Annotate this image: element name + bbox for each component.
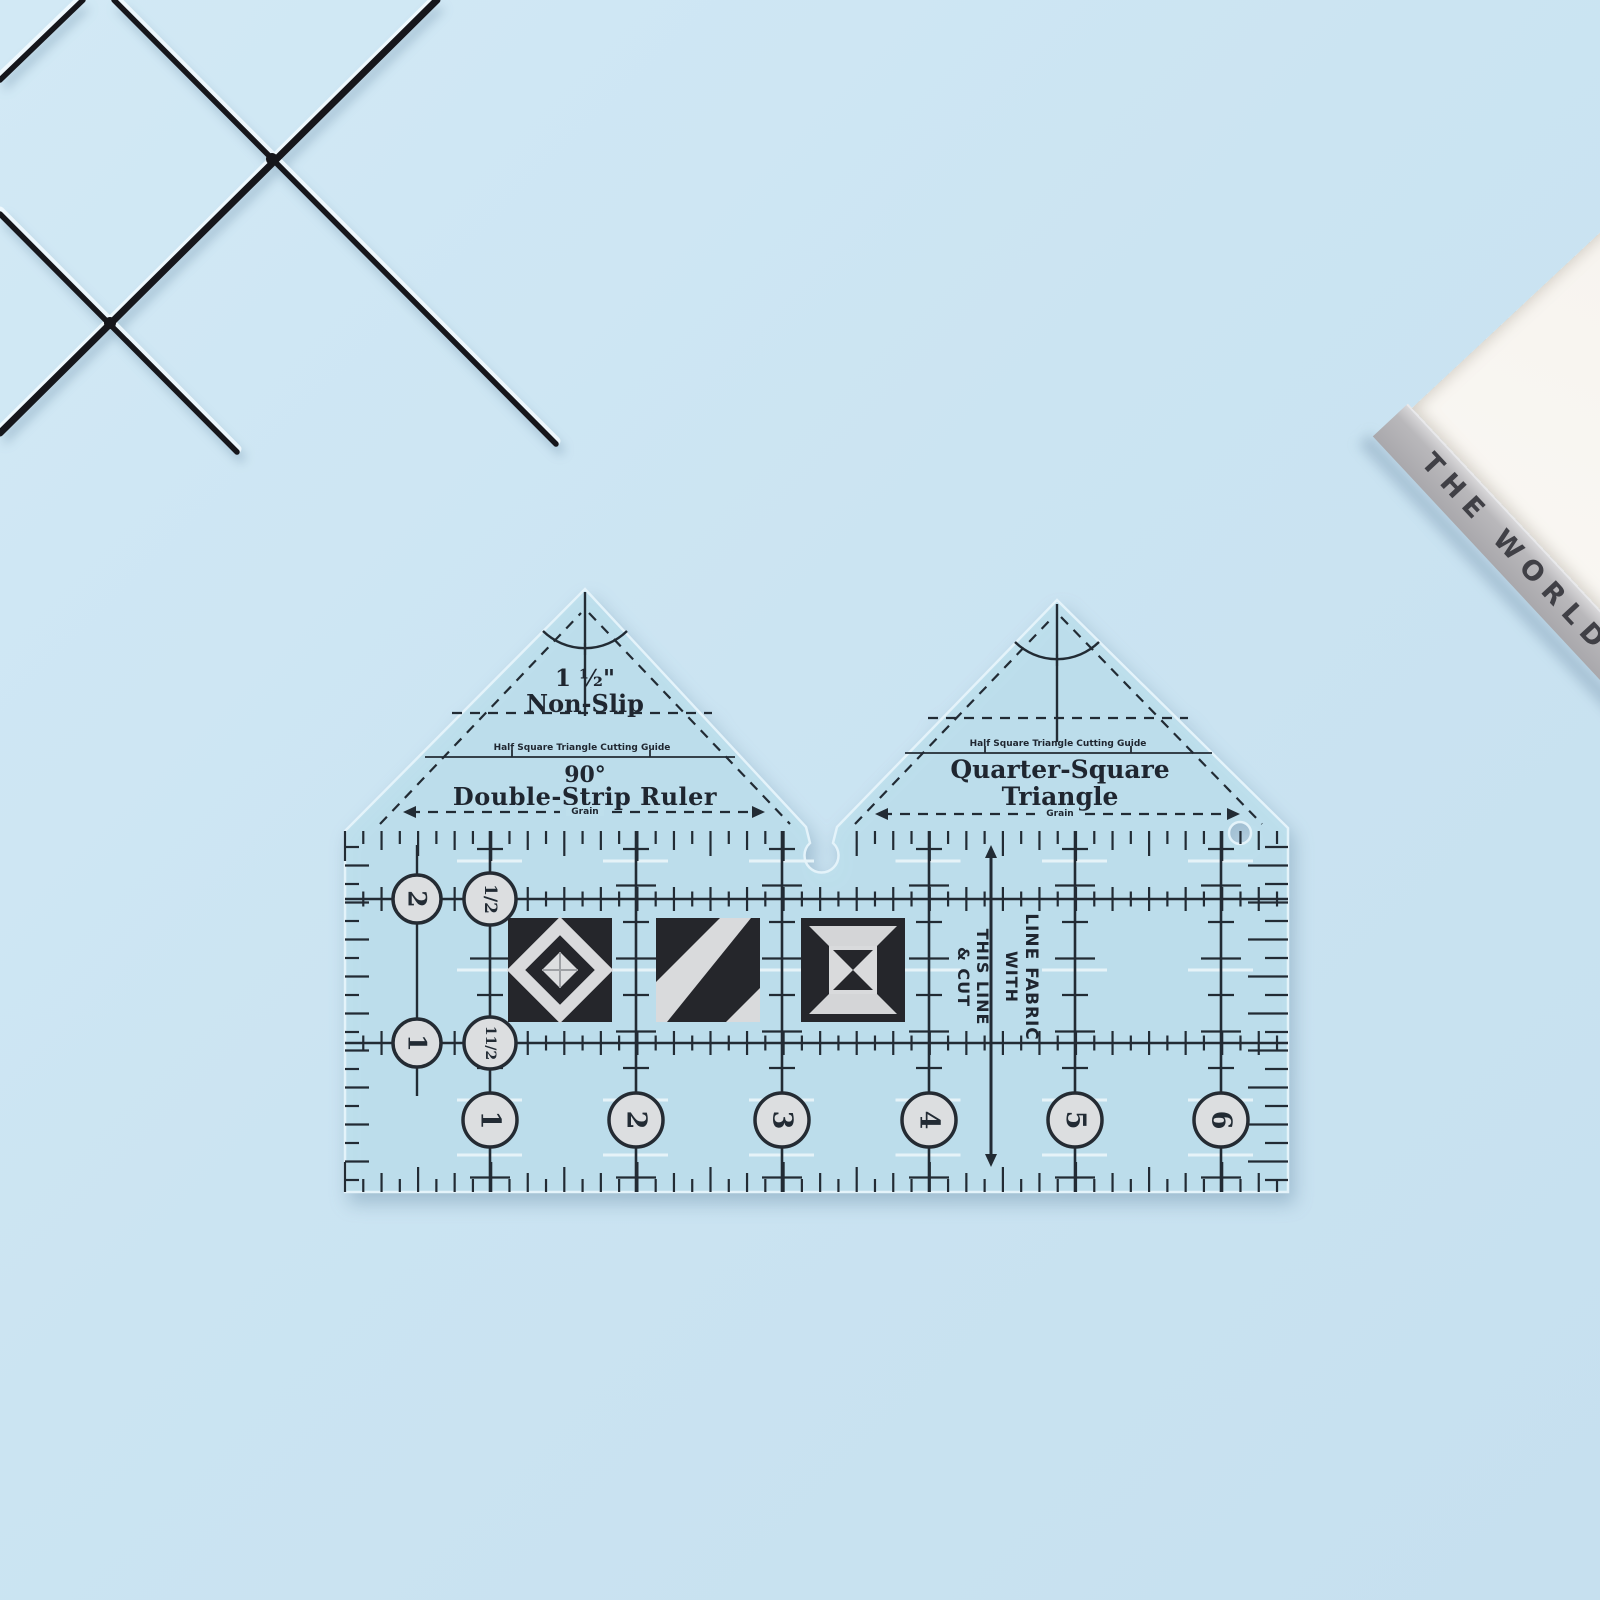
grain-label: Grain bbox=[1046, 809, 1073, 819]
scene-background: THE WORLD bbox=[0, 0, 1600, 1600]
cutting-guide-label: Half Square Triangle Cutting Guide bbox=[970, 739, 1147, 749]
nonslip-label: Non-Slip bbox=[526, 689, 644, 718]
inch-value: 3 bbox=[767, 1111, 798, 1130]
circle-value: 11/2 bbox=[482, 1026, 498, 1060]
ruler-title-line1: Quarter-Square bbox=[950, 755, 1169, 784]
inch-value: 4 bbox=[914, 1111, 945, 1130]
grain-label: Grain bbox=[571, 807, 598, 817]
inch-value: 6 bbox=[1206, 1111, 1237, 1130]
inch-value: 2 bbox=[621, 1111, 652, 1130]
circle-value: 1/2 bbox=[480, 884, 500, 914]
cut-instruction-line: LINE FABRIC bbox=[1021, 913, 1041, 1041]
inch-value: 5 bbox=[1060, 1111, 1091, 1130]
quilt-block-square-in-square bbox=[801, 918, 905, 1022]
quilt-block-diagonal-stripe bbox=[656, 918, 760, 1022]
circle-value: 2 bbox=[403, 890, 432, 907]
size-label: 1 ½" bbox=[555, 665, 615, 692]
quilt-block-diamond-in-square bbox=[508, 918, 612, 1022]
inch-value: 1 bbox=[475, 1111, 506, 1130]
cut-instruction-line: WITH bbox=[1002, 951, 1021, 1003]
quilting-ruler: 2 1/2 1 11/2 1 2 3 4 5 6 1 ½" bbox=[0, 0, 1600, 1600]
cut-instruction-line: & CUT bbox=[954, 947, 973, 1007]
circle-value: 1 bbox=[403, 1034, 432, 1051]
cutting-guide-label: Half Square Triangle Cutting Guide bbox=[494, 743, 671, 753]
cut-instruction-line: THIS LINE bbox=[973, 929, 992, 1026]
